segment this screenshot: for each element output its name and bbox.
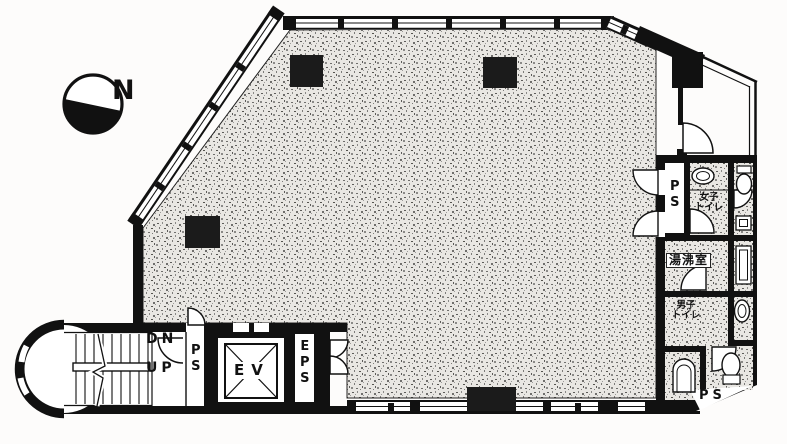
toilet-icon <box>722 353 740 384</box>
toilet-icon <box>737 166 752 194</box>
mens-toilet-label: 男子 トイレ <box>666 301 706 322</box>
eps-label: EPS <box>297 339 311 387</box>
window-band-top <box>283 16 614 30</box>
stairs-down-label: DN <box>146 332 177 347</box>
kitchenette-label: 湯沸室 <box>666 253 711 268</box>
door-swing-icon <box>683 123 713 153</box>
window-band-bottom <box>347 400 700 414</box>
north-label: N <box>112 76 135 106</box>
ne-corner-pier <box>672 52 703 88</box>
service-sink-icon <box>736 216 751 230</box>
kitchen-sink-icon <box>736 246 751 284</box>
column <box>467 387 516 411</box>
urinal-icon <box>673 359 695 392</box>
door-swing-icon <box>330 340 348 374</box>
ps-shaft-label-stair: PS <box>188 343 202 375</box>
floor-plan-drawing <box>0 0 787 444</box>
column <box>185 216 220 248</box>
elevator-core <box>204 323 348 412</box>
column <box>483 57 517 88</box>
elevator-label: EV <box>230 362 271 379</box>
stairs-up-label: UP <box>146 361 176 376</box>
west-wall <box>133 225 143 327</box>
column <box>290 55 323 87</box>
ps-shaft-label-top: PS <box>667 179 681 211</box>
urinal-icon <box>735 300 750 322</box>
womens-toilet-label: 女子 トイレ <box>689 193 729 214</box>
ps-shaft-label-bottom: PS <box>699 389 726 403</box>
stair-landing-rail <box>73 363 150 371</box>
floor-plan: N DN UP PS EV EPS PS 女子 トイレ 湯沸室 男子 トイレ P… <box>0 0 787 444</box>
